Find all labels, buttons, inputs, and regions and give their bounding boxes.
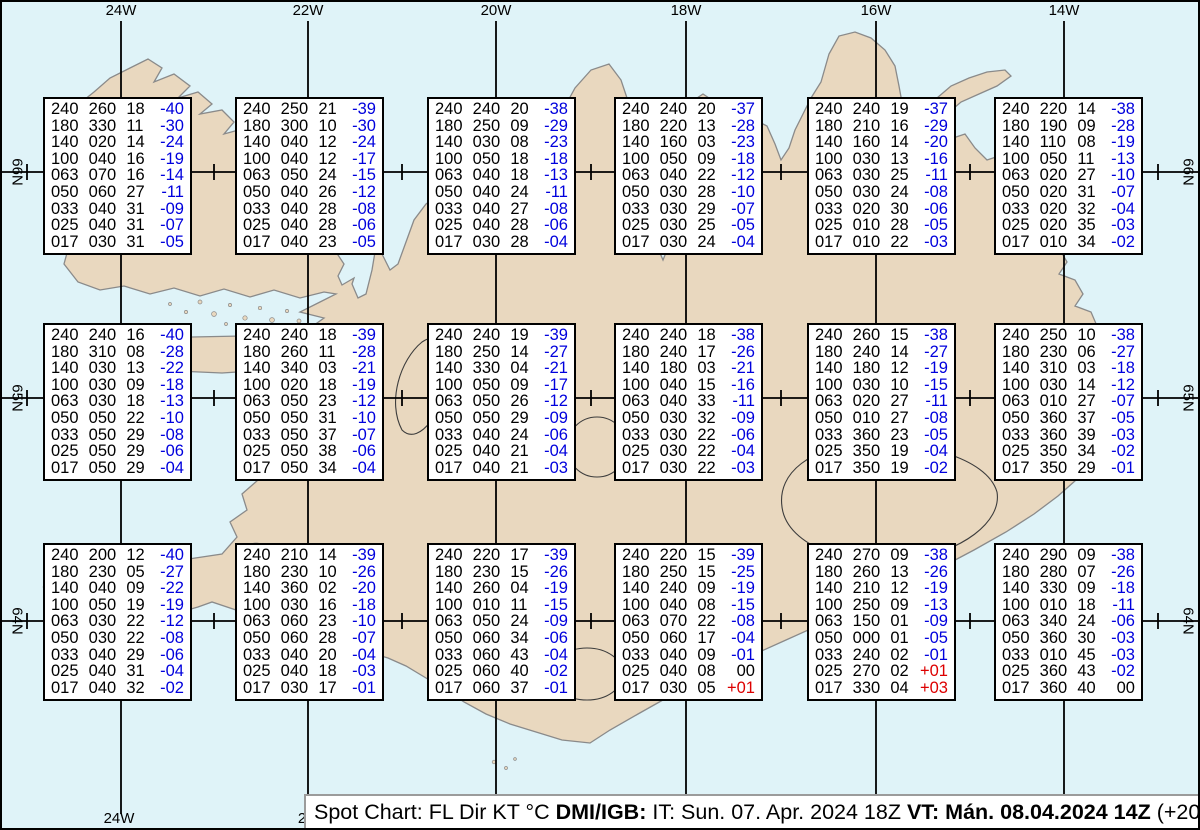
wind-speed-cell: 14 xyxy=(890,344,910,361)
wind-dir-cell: 250 xyxy=(473,344,502,361)
wind-speed-cell: 11 xyxy=(1077,151,1097,168)
wind-dir-cell: 030 xyxy=(473,134,502,151)
wind-dir-cell: 040 xyxy=(473,184,502,201)
wind-speed-cell: 08 xyxy=(697,663,717,680)
wind-dir-cell: 030 xyxy=(853,184,882,201)
flight-level-cell: 063 xyxy=(815,613,844,630)
station-row: 14034003-21 xyxy=(243,360,376,377)
station-row: 02505029-06 xyxy=(51,443,184,460)
station-row: 24022017-39 xyxy=(435,547,568,564)
station-box-14: 24021014-3918023010-2614036002-201000301… xyxy=(235,543,384,701)
station-row: 03305037-07 xyxy=(243,427,376,444)
flight-level-cell: 063 xyxy=(435,393,464,410)
temperature-cell: -06 xyxy=(539,217,568,234)
temperature-cell: -13 xyxy=(919,597,948,614)
station-row: 06305026-12 xyxy=(435,393,568,410)
wind-speed-cell: 09 xyxy=(697,151,717,168)
temperature-cell: -02 xyxy=(1106,663,1135,680)
wind-dir-cell: 180 xyxy=(660,360,689,377)
temperature-cell: -12 xyxy=(1106,377,1135,394)
wind-dir-cell: 040 xyxy=(473,427,502,444)
wind-speed-cell: 13 xyxy=(697,118,717,135)
wind-speed-cell: 02 xyxy=(318,580,338,597)
flight-level-cell: 017 xyxy=(243,234,272,251)
temperature-cell: -02 xyxy=(539,663,568,680)
wind-speed-cell: 12 xyxy=(890,360,910,377)
wind-dir-cell: 060 xyxy=(281,613,310,630)
station-row: 06303022-12 xyxy=(51,613,184,630)
flight-level-cell: 017 xyxy=(435,460,464,477)
station-row: 03302030-06 xyxy=(815,201,948,218)
wind-speed-cell: 28 xyxy=(510,234,530,251)
flight-level-cell: 180 xyxy=(435,564,464,581)
flight-level-cell: 050 xyxy=(815,410,844,427)
flight-level-cell: 025 xyxy=(51,217,80,234)
station-row: 01703031-05 xyxy=(51,234,184,251)
wind-speed-cell: 29 xyxy=(510,410,530,427)
station-row: 14004009-22 xyxy=(51,580,184,597)
wind-dir-cell: 050 xyxy=(281,410,310,427)
temperature-cell: -19 xyxy=(919,360,948,377)
flight-level-cell: 025 xyxy=(243,217,272,234)
temperature-cell: -05 xyxy=(155,234,184,251)
wind-speed-cell: 16 xyxy=(890,118,910,135)
wind-speed-cell: 23 xyxy=(318,393,338,410)
wind-dir-cell: 050 xyxy=(89,597,118,614)
lat-label-left-66n: 66N xyxy=(10,158,25,186)
station-row: 06305023-12 xyxy=(243,393,376,410)
flight-level-cell: 180 xyxy=(622,564,651,581)
wind-dir-cell: 040 xyxy=(660,167,689,184)
wind-speed-cell: 17 xyxy=(697,630,717,647)
flight-level-cell: 180 xyxy=(815,564,844,581)
flight-level-cell: 063 xyxy=(622,613,651,630)
wind-speed-cell: 01 xyxy=(890,613,910,630)
temperature-cell: -28 xyxy=(347,344,376,361)
temperature-cell: -11 xyxy=(539,184,568,201)
temperature-cell: -38 xyxy=(1106,101,1135,118)
wind-dir-cell: 240 xyxy=(853,344,882,361)
station-row: 06305024-15 xyxy=(243,167,376,184)
wind-speed-cell: 43 xyxy=(1077,663,1097,680)
wind-dir-cell: 030 xyxy=(89,630,118,647)
temperature-cell: -19 xyxy=(919,580,948,597)
station-row: 03304031-09 xyxy=(51,201,184,218)
wind-speed-cell: 19 xyxy=(126,597,146,614)
temperature-cell: -13 xyxy=(539,167,568,184)
flight-level-cell: 025 xyxy=(1002,663,1031,680)
temperature-cell: -40 xyxy=(155,101,184,118)
flight-level-cell: 050 xyxy=(435,410,464,427)
flight-level-cell: 063 xyxy=(815,167,844,184)
station-row: 01701022-03 xyxy=(815,234,948,251)
temperature-cell: -11 xyxy=(1106,597,1135,614)
station-row: 18026011-28 xyxy=(243,344,376,361)
wind-dir-cell: 230 xyxy=(89,564,118,581)
station-row: 03336023-05 xyxy=(815,427,948,444)
wind-dir-cell: 180 xyxy=(853,360,882,377)
flight-level-cell: 033 xyxy=(51,427,80,444)
flight-level-cell: 140 xyxy=(1002,134,1031,151)
wind-dir-cell: 050 xyxy=(473,410,502,427)
flight-level-cell: 063 xyxy=(1002,613,1031,630)
title-segment-0: Spot Chart: FL Dir KT °C xyxy=(314,800,556,825)
station-box-7: 24024016-4018031008-2814003013-221000300… xyxy=(43,323,192,481)
wind-dir-cell: 340 xyxy=(1040,613,1069,630)
wind-dir-cell: 040 xyxy=(281,134,310,151)
wind-speed-cell: 18 xyxy=(510,151,530,168)
wind-dir-cell: 040 xyxy=(281,201,310,218)
flight-level-cell: 050 xyxy=(51,630,80,647)
station-row: 10005011-13 xyxy=(1002,151,1135,168)
flight-level-cell: 050 xyxy=(243,184,272,201)
temperature-cell: -11 xyxy=(726,393,755,410)
wind-dir-cell: 020 xyxy=(853,393,882,410)
flight-level-cell: 240 xyxy=(435,547,464,564)
wind-dir-cell: 360 xyxy=(1040,663,1069,680)
wind-dir-cell: 050 xyxy=(1040,151,1069,168)
temperature-cell: -04 xyxy=(155,663,184,680)
wind-speed-cell: 18 xyxy=(126,393,146,410)
wind-speed-cell: 05 xyxy=(126,564,146,581)
wind-dir-cell: 260 xyxy=(89,101,118,118)
station-row: 24029009-38 xyxy=(1002,547,1135,564)
temperature-cell: -38 xyxy=(726,327,755,344)
flight-level-cell: 033 xyxy=(435,647,464,664)
temperature-cell: -28 xyxy=(155,344,184,361)
station-row: 01703017-01 xyxy=(243,680,376,697)
temperature-cell: -06 xyxy=(347,217,376,234)
flight-level-cell: 033 xyxy=(815,201,844,218)
flight-level-cell: 100 xyxy=(815,151,844,168)
wind-speed-cell: 03 xyxy=(1077,360,1097,377)
flight-level-cell: 100 xyxy=(51,377,80,394)
station-row: 18026013-26 xyxy=(815,564,948,581)
flight-level-cell: 033 xyxy=(622,427,651,444)
station-row: 06315001-09 xyxy=(815,613,948,630)
temperature-cell: -04 xyxy=(726,630,755,647)
wind-speed-cell: 09 xyxy=(1077,547,1097,564)
temperature-cell: -10 xyxy=(155,410,184,427)
wind-speed-cell: 25 xyxy=(697,217,717,234)
wind-speed-cell: 15 xyxy=(510,564,530,581)
flight-level-cell: 017 xyxy=(815,680,844,697)
wind-speed-cell: 29 xyxy=(1077,460,1097,477)
temperature-cell: -04 xyxy=(726,443,755,460)
lat-label-right-65n: 65N xyxy=(1181,384,1196,412)
temperature-cell: +01 xyxy=(919,663,948,680)
station-row: 01703005+01 xyxy=(622,680,755,697)
flight-level-cell: 017 xyxy=(51,680,80,697)
wind-speed-cell: 14 xyxy=(126,134,146,151)
station-row: 05005029-09 xyxy=(435,410,568,427)
temperature-cell: -39 xyxy=(539,327,568,344)
flight-level-cell: 240 xyxy=(435,327,464,344)
wind-dir-cell: 030 xyxy=(89,377,118,394)
wind-speed-cell: 24 xyxy=(697,234,717,251)
temperature-cell: -11 xyxy=(919,167,948,184)
station-row: 02504028-06 xyxy=(243,217,376,234)
wind-speed-cell: 09 xyxy=(510,377,530,394)
wind-dir-cell: 030 xyxy=(660,443,689,460)
temperature-cell: -37 xyxy=(919,101,948,118)
flight-level-cell: 017 xyxy=(435,680,464,697)
wind-dir-cell: 360 xyxy=(853,427,882,444)
wind-dir-cell: 020 xyxy=(1040,167,1069,184)
wind-dir-cell: 050 xyxy=(473,151,502,168)
temperature-cell: -19 xyxy=(726,580,755,597)
wind-speed-cell: 18 xyxy=(510,167,530,184)
wind-dir-cell: 310 xyxy=(1040,360,1069,377)
station-row: 18024014-27 xyxy=(815,344,948,361)
temperature-cell: -08 xyxy=(347,201,376,218)
flight-level-cell: 100 xyxy=(51,151,80,168)
temperature-cell: -06 xyxy=(155,443,184,460)
station-row: 06302027-10 xyxy=(1002,167,1135,184)
wind-speed-cell: 10 xyxy=(890,377,910,394)
wind-dir-cell: 020 xyxy=(853,201,882,218)
flight-level-cell: 100 xyxy=(243,151,272,168)
flight-level-cell: 033 xyxy=(243,201,272,218)
wind-dir-cell: 040 xyxy=(281,217,310,234)
station-row: 06303025-11 xyxy=(815,167,948,184)
temperature-cell: -03 xyxy=(726,460,755,477)
wind-dir-cell: 270 xyxy=(853,663,882,680)
temperature-cell: -19 xyxy=(155,151,184,168)
temperature-cell: -08 xyxy=(539,201,568,218)
station-box-12: 24025010-3818023006-2714031003-181000301… xyxy=(994,323,1143,481)
wind-dir-cell: 250 xyxy=(853,597,882,614)
wind-dir-cell: 050 xyxy=(281,427,310,444)
station-row: 24024018-38 xyxy=(622,327,755,344)
flight-level-cell: 033 xyxy=(51,647,80,664)
wind-speed-cell: 27 xyxy=(126,184,146,201)
station-row: 05006017-04 xyxy=(622,630,755,647)
wind-dir-cell: 020 xyxy=(89,134,118,151)
flight-level-cell: 240 xyxy=(815,101,844,118)
wind-dir-cell: 360 xyxy=(281,580,310,597)
station-box-16: 24022015-3918025015-2514024009-191000400… xyxy=(614,543,763,701)
wind-speed-cell: 28 xyxy=(318,201,338,218)
temperature-cell: -39 xyxy=(347,547,376,564)
station-box-9: 24024019-3918025014-2714033004-211000500… xyxy=(427,323,576,481)
temperature-cell: -02 xyxy=(919,460,948,477)
wind-dir-cell: 050 xyxy=(473,377,502,394)
wind-speed-cell: 23 xyxy=(890,427,910,444)
temperature-cell: -26 xyxy=(919,564,948,581)
lat-label-right-64n: 64N xyxy=(1181,607,1196,635)
wind-dir-cell: 010 xyxy=(1040,597,1069,614)
temperature-cell: -05 xyxy=(347,234,376,251)
flight-level-cell: 017 xyxy=(815,234,844,251)
flight-level-cell: 240 xyxy=(243,327,272,344)
station-row: 14031003-18 xyxy=(1002,360,1135,377)
wind-dir-cell: 040 xyxy=(473,217,502,234)
flight-level-cell: 140 xyxy=(1002,580,1031,597)
wind-speed-cell: 19 xyxy=(890,460,910,477)
wind-dir-cell: 050 xyxy=(281,443,310,460)
wind-speed-cell: 09 xyxy=(126,580,146,597)
wind-dir-cell: 050 xyxy=(660,151,689,168)
station-row: 06301027-07 xyxy=(1002,393,1135,410)
flight-level-cell: 140 xyxy=(815,580,844,597)
flight-level-cell: 050 xyxy=(622,410,651,427)
wind-speed-cell: 28 xyxy=(890,217,910,234)
station-row: 05006034-06 xyxy=(435,630,568,647)
temperature-cell: -06 xyxy=(919,201,948,218)
wind-dir-cell: 020 xyxy=(1040,184,1069,201)
flight-level-cell: 140 xyxy=(243,580,272,597)
wind-speed-cell: 15 xyxy=(890,327,910,344)
flight-level-cell: 050 xyxy=(243,630,272,647)
spot-chart-map: 24W22W20W18W16W14W24W266N66N65N65N64N64N… xyxy=(0,0,1200,830)
flight-level-cell: 100 xyxy=(815,597,844,614)
temperature-cell: -05 xyxy=(1106,410,1135,427)
station-row: 14011008-19 xyxy=(1002,134,1135,151)
wind-dir-cell: 040 xyxy=(473,167,502,184)
flight-level-cell: 050 xyxy=(622,184,651,201)
station-row: 10005019-19 xyxy=(51,597,184,614)
wind-speed-cell: 13 xyxy=(126,360,146,377)
wind-speed-cell: 24 xyxy=(510,613,530,630)
wind-speed-cell: 08 xyxy=(697,597,717,614)
wind-speed-cell: 16 xyxy=(126,151,146,168)
temperature-cell: -04 xyxy=(539,234,568,251)
wind-speed-cell: 09 xyxy=(1077,580,1097,597)
wind-speed-cell: 32 xyxy=(697,410,717,427)
flight-level-cell: 025 xyxy=(435,663,464,680)
wind-dir-cell: 040 xyxy=(660,647,689,664)
flight-level-cell: 180 xyxy=(435,118,464,135)
wind-dir-cell: 290 xyxy=(1040,547,1069,564)
temperature-cell: -12 xyxy=(155,613,184,630)
temperature-cell: -30 xyxy=(155,118,184,135)
station-row: 01704021-03 xyxy=(435,460,568,477)
flight-level-cell: 017 xyxy=(622,460,651,477)
wind-speed-cell: 20 xyxy=(697,101,717,118)
station-row: 10004016-19 xyxy=(51,151,184,168)
wind-dir-cell: 240 xyxy=(660,327,689,344)
wind-speed-cell: 33 xyxy=(697,393,717,410)
temperature-cell: -15 xyxy=(919,377,948,394)
flight-level-cell: 240 xyxy=(243,101,272,118)
lon-label-top-18w: 18W xyxy=(671,3,702,19)
station-row: 24026018-40 xyxy=(51,101,184,118)
flight-level-cell: 100 xyxy=(622,597,651,614)
temperature-cell: -04 xyxy=(347,460,376,477)
lon-label-top-14w: 14W xyxy=(1049,3,1080,19)
temperature-cell: -06 xyxy=(539,630,568,647)
flight-level-cell: 100 xyxy=(435,597,464,614)
wind-dir-cell: 150 xyxy=(853,613,882,630)
flight-level-cell: 063 xyxy=(435,167,464,184)
station-row: 05006027-11 xyxy=(51,184,184,201)
flight-level-cell: 140 xyxy=(622,134,651,151)
wind-speed-cell: 35 xyxy=(1077,217,1097,234)
flight-level-cell: 100 xyxy=(1002,151,1031,168)
station-row: 05005022-10 xyxy=(51,410,184,427)
temperature-cell: -38 xyxy=(919,327,948,344)
wind-dir-cell: 040 xyxy=(89,580,118,597)
station-row: 10003010-15 xyxy=(815,377,948,394)
station-row: 24022014-38 xyxy=(1002,101,1135,118)
station-row: 10003016-18 xyxy=(243,597,376,614)
lon-label-top-16w: 16W xyxy=(861,3,892,19)
wind-speed-cell: 28 xyxy=(318,217,338,234)
wind-speed-cell: 10 xyxy=(318,564,338,581)
wind-dir-cell: 260 xyxy=(853,564,882,581)
flight-level-cell: 063 xyxy=(51,167,80,184)
station-row: 18025009-29 xyxy=(435,118,568,135)
station-row: 14003013-22 xyxy=(51,360,184,377)
wind-dir-cell: 030 xyxy=(281,680,310,697)
temperature-cell: -11 xyxy=(919,393,948,410)
wind-dir-cell: 050 xyxy=(281,460,310,477)
station-box-2: 24025021-3918030010-3014004012-241000401… xyxy=(235,97,384,255)
flight-level-cell: 063 xyxy=(51,393,80,410)
wind-speed-cell: 03 xyxy=(697,134,717,151)
temperature-cell: -37 xyxy=(726,101,755,118)
lat-label-left-64n: 64N xyxy=(10,607,25,635)
temperature-cell: -07 xyxy=(155,217,184,234)
flight-level-cell: 180 xyxy=(51,118,80,135)
wind-dir-cell: 060 xyxy=(660,630,689,647)
flight-level-cell: 140 xyxy=(243,360,272,377)
temperature-cell: -03 xyxy=(347,663,376,680)
station-row: 02527002+01 xyxy=(815,663,948,680)
temperature-cell: -04 xyxy=(539,647,568,664)
wind-dir-cell: 210 xyxy=(853,580,882,597)
wind-dir-cell: 060 xyxy=(473,647,502,664)
wind-speed-cell: 31 xyxy=(318,410,338,427)
wind-dir-cell: 050 xyxy=(89,427,118,444)
wind-speed-cell: 08 xyxy=(1077,134,1097,151)
station-row: 14036002-20 xyxy=(243,580,376,597)
station-row: 10004008-15 xyxy=(622,597,755,614)
temperature-cell: -05 xyxy=(919,630,948,647)
flight-level-cell: 050 xyxy=(1002,184,1031,201)
station-row: 03303029-07 xyxy=(622,201,755,218)
temperature-cell: -13 xyxy=(155,393,184,410)
temperature-cell: -08 xyxy=(155,630,184,647)
station-row: 01703024-04 xyxy=(622,234,755,251)
wind-speed-cell: 19 xyxy=(890,101,910,118)
wind-speed-cell: 34 xyxy=(318,460,338,477)
station-row: 05036030-03 xyxy=(1002,630,1135,647)
station-box-11: 24026015-3818024014-2714018012-191000301… xyxy=(807,323,956,481)
flight-level-cell: 033 xyxy=(1002,647,1031,664)
temperature-cell: +01 xyxy=(726,680,755,697)
station-row: 18023015-26 xyxy=(435,564,568,581)
flight-level-cell: 033 xyxy=(622,201,651,218)
flight-level-cell: 050 xyxy=(815,630,844,647)
wind-speed-cell: 17 xyxy=(318,680,338,697)
wind-dir-cell: 050 xyxy=(281,393,310,410)
wind-dir-cell: 050 xyxy=(89,410,118,427)
station-row: 06306023-10 xyxy=(243,613,376,630)
wind-speed-cell: 28 xyxy=(318,630,338,647)
flight-level-cell: 240 xyxy=(1002,547,1031,564)
flight-level-cell: 025 xyxy=(622,443,651,460)
flight-level-cell: 100 xyxy=(815,377,844,394)
station-row: 14016014-20 xyxy=(815,134,948,151)
wind-speed-cell: 31 xyxy=(126,234,146,251)
flight-level-cell: 240 xyxy=(51,327,80,344)
flight-level-cell: 025 xyxy=(1002,217,1031,234)
title-segment-1: DMI/IGB: xyxy=(556,800,647,825)
temperature-cell: -01 xyxy=(726,647,755,664)
station-row: 10005018-18 xyxy=(435,151,568,168)
